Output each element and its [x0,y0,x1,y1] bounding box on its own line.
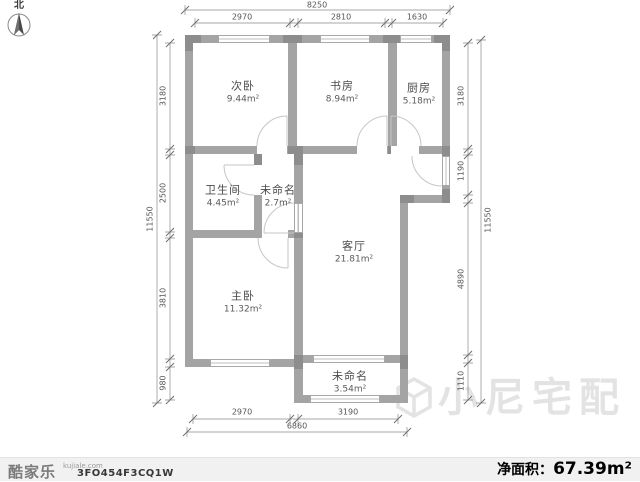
dim-top-seg: 2970 [232,13,252,22]
dim-bottom-seg: 2970 [232,408,252,417]
room-label-hall: 未命名 2.7m² [260,182,296,209]
dim-bottom-overall: 6860 [287,422,307,431]
net-area-value: 67.39m² [553,459,632,479]
compass: 北 [4,1,34,43]
plan-code: 3FO454F3CQ1W [77,468,174,479]
dimension-slash-ticks [153,6,485,436]
room-label-weishengjian: 卫生间 4.45m² [205,182,241,209]
dim-bottom-seg: 3190 [338,408,358,417]
room-label-balcony: 未命名 3.54m² [332,368,368,395]
dim-right-seg: 1190 [457,161,466,181]
kujiale-logo: 酷家乐 [8,461,56,482]
net-area-label: 净面积： [497,459,553,479]
room-label-ciwo: 次卧 9.44m² [227,78,259,105]
compass-north-label: 北 [4,1,34,11]
dim-left-overall: 11550 [146,206,155,231]
dim-left-seg: 980 [159,375,168,390]
room-label-keting: 客厅 21.81m² [335,238,373,265]
compass-icon [4,11,34,39]
dim-top-overall: 8250 [307,1,327,10]
dim-right-overall: 11550 [484,207,493,232]
room-label-shufang: 书房 8.94m² [326,78,358,105]
dim-right-seg: 3180 [457,86,466,106]
dim-left-seg: 3180 [159,86,168,106]
dimension-lines [152,5,486,437]
dim-right-seg: 4890 [457,269,466,289]
dim-top-seg: 1630 [407,13,427,22]
dim-left-seg: 2500 [159,183,168,203]
room-label-zhuwo: 主卧 11.32m² [224,288,262,315]
door-arcs-and-dimension-lines [0,0,640,480]
footer-bar: 酷家乐 kujiale.com 3FO454F3CQ1W 净面积： 67.39m… [0,457,640,481]
net-area: 净面积： 67.39m² [497,459,632,479]
dim-top-seg: 2810 [331,13,351,22]
door-swing-arcs [224,116,442,268]
room-label-chufang: 厨房 5.18m² [403,80,435,107]
dim-left-seg: 3810 [159,288,168,308]
dim-right-seg: 1110 [457,371,466,391]
